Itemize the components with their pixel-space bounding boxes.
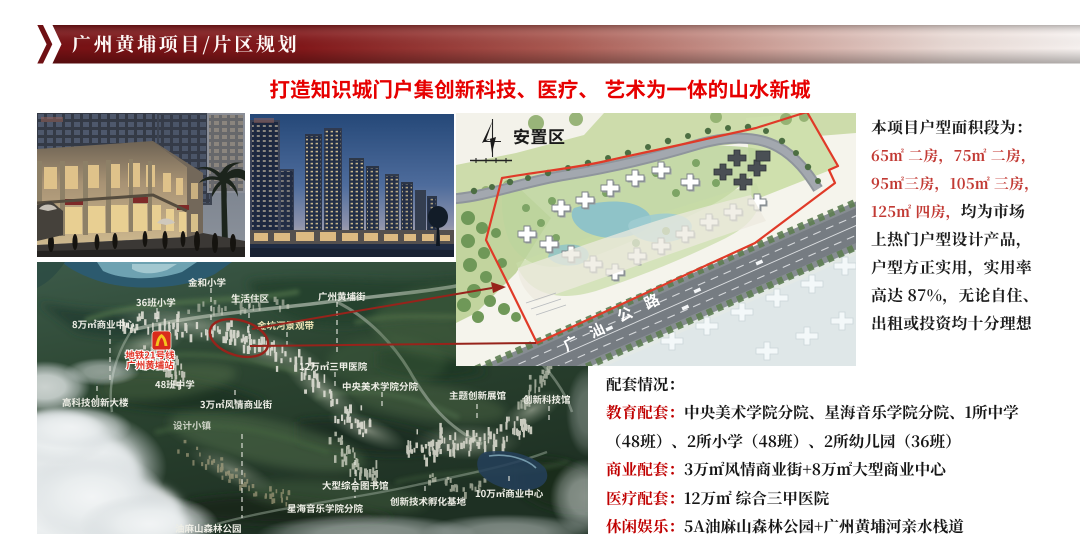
svg-text:金和小学: 金和小学 [188,275,227,289]
svg-text:大型综合图书馆: 大型综合图书馆 [322,478,389,492]
svg-text:油麻山森林公园: 油麻山森林公园 [175,521,242,534]
svg-text:10万㎡商业中心: 10万㎡商业中心 [475,486,544,500]
svg-text:36班小学: 36班小学 [136,295,176,309]
svg-text:3万㎡风情商业街: 3万㎡风情商业街 [200,397,273,411]
svg-text:广州黄埔街: 广州黄埔街 [318,289,366,303]
svg-text:创新科技馆: 创新科技馆 [523,392,571,406]
svg-text:中央美术学院分院: 中央美术学院分院 [342,379,419,393]
svg-text:设计小镇: 设计小镇 [173,418,212,432]
svg-text:8万㎡商业中心: 8万㎡商业中心 [72,317,135,331]
svg-text:主题创新展馆: 主题创新展馆 [449,388,507,402]
svg-text:高科技创新大楼: 高科技创新大楼 [62,395,129,409]
svg-text:48班中学: 48班中学 [155,377,195,391]
svg-text:星海音乐学院分院: 星海音乐学院分院 [287,501,364,515]
svg-text:生活住区: 生活住区 [231,291,270,305]
svg-text:广州黄埔站: 广州黄埔站 [126,358,174,372]
svg-text:12万㎡三甲医院: 12万㎡三甲医院 [299,359,368,373]
svg-text:创新技术孵化基地: 创新技术孵化基地 [390,494,467,508]
svg-text:安置区: 安置区 [513,123,566,148]
svg-text:金坑河景观带: 金坑河景观带 [257,318,315,332]
